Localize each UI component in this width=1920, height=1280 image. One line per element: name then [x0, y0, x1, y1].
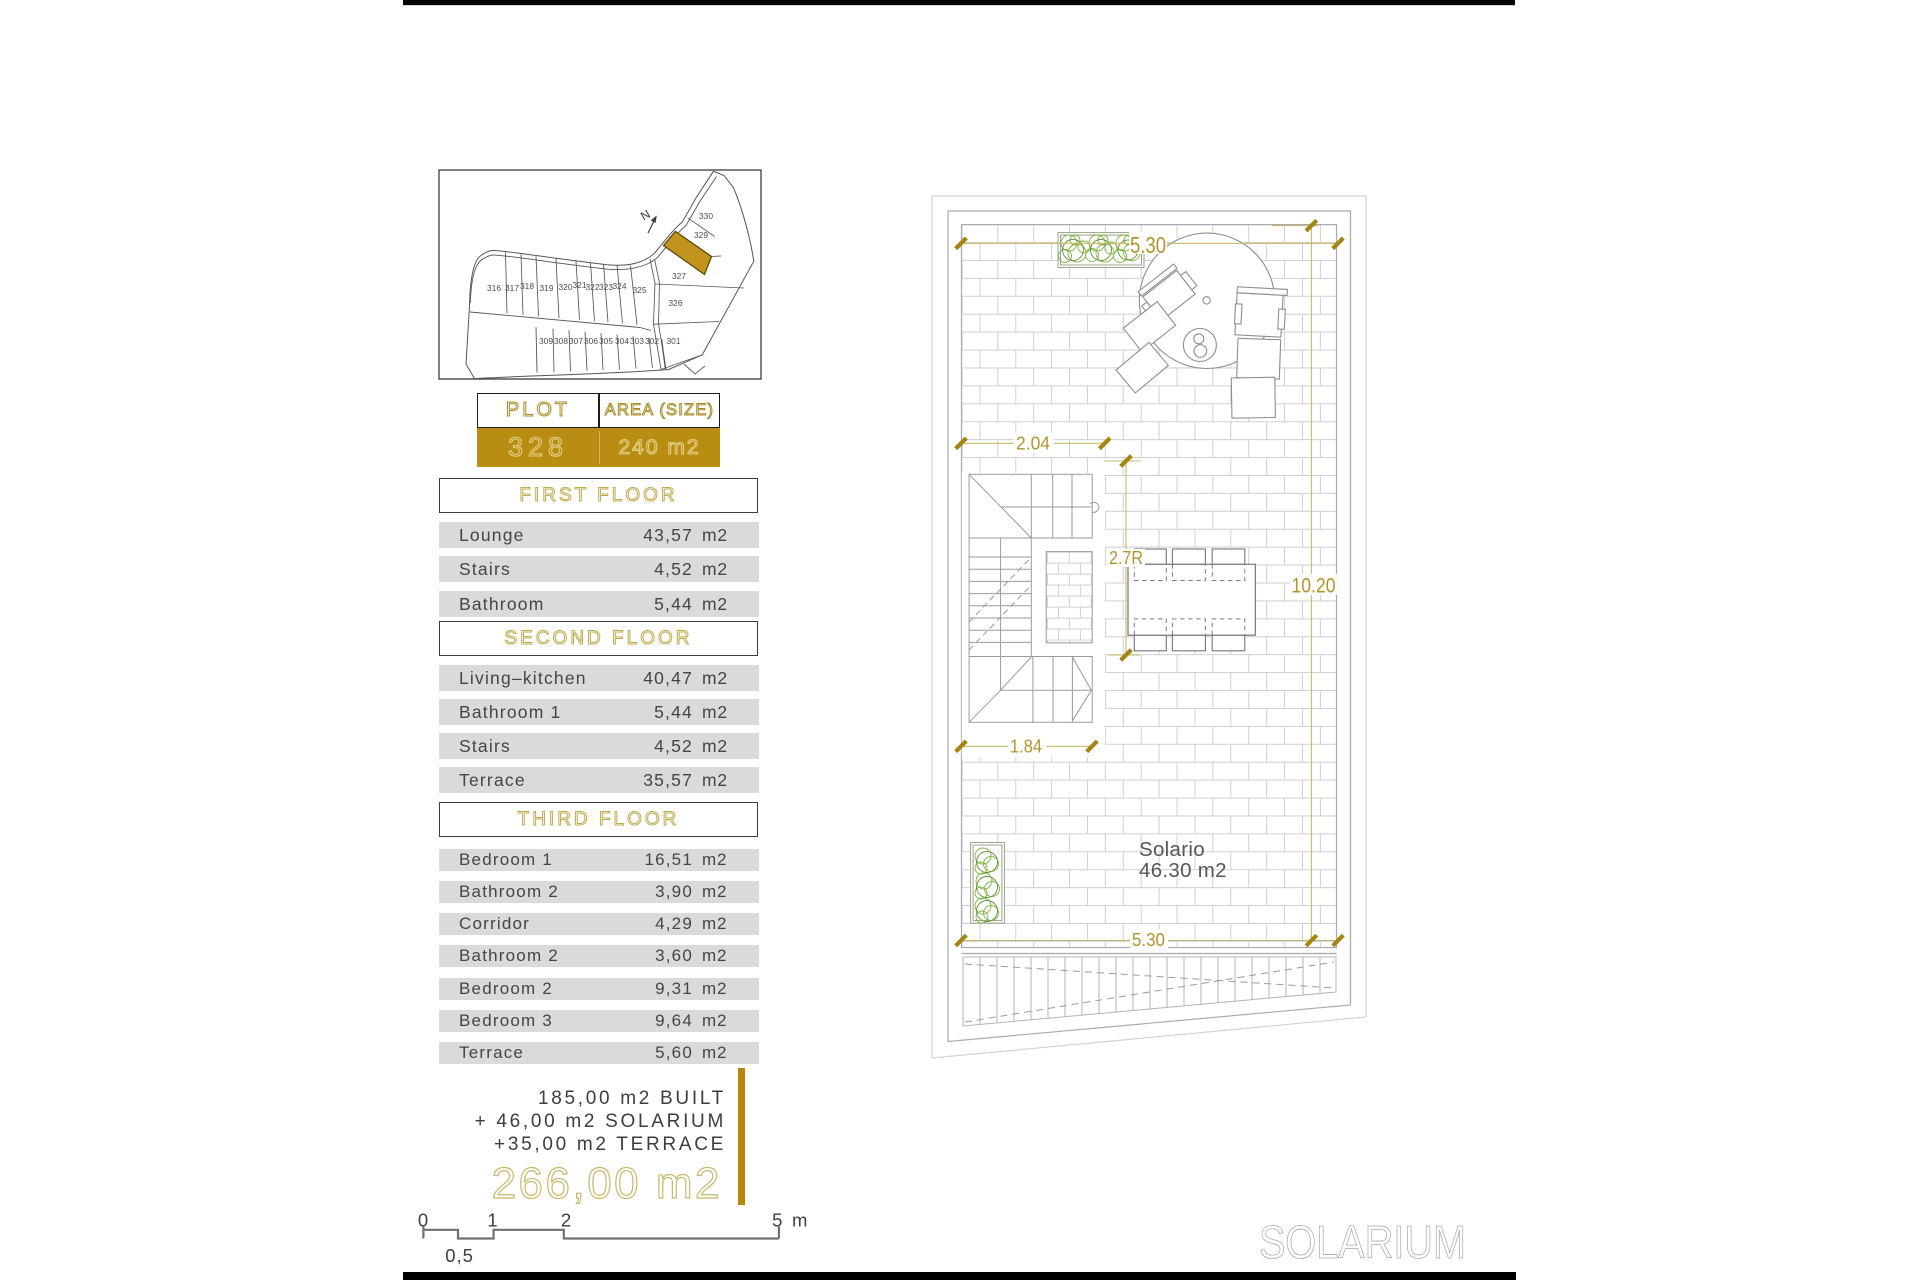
svg-text:46.30 m2: 46.30 m2: [1139, 859, 1227, 882]
svg-text:0: 0: [418, 1210, 428, 1231]
svg-text:317: 317: [505, 283, 519, 293]
svg-text:5.30: 5.30: [1132, 930, 1165, 950]
svg-text:0,5: 0,5: [445, 1245, 474, 1266]
svg-text:322: 322: [586, 282, 600, 292]
svg-text:320: 320: [559, 282, 573, 292]
svg-text:304: 304: [615, 336, 629, 346]
svg-text:SOLARIUM: SOLARIUM: [1259, 1216, 1466, 1268]
svg-text:308: 308: [554, 336, 568, 346]
svg-text:326: 326: [669, 298, 683, 308]
svg-text:1.84: 1.84: [1010, 737, 1042, 757]
svg-text:306: 306: [584, 336, 598, 346]
svg-text:307: 307: [569, 336, 583, 346]
svg-text:5.30: 5.30: [1130, 232, 1166, 258]
svg-text:305: 305: [599, 336, 613, 346]
svg-text:m: m: [792, 1210, 807, 1231]
svg-text:N: N: [638, 207, 653, 223]
svg-text:2.7R: 2.7R: [1109, 548, 1143, 568]
svg-text:302: 302: [645, 336, 659, 346]
svg-text:2: 2: [561, 1210, 571, 1231]
svg-text:324: 324: [613, 281, 627, 291]
svg-text:2.04: 2.04: [1016, 434, 1050, 454]
svg-text:327: 327: [672, 271, 686, 281]
svg-text:1: 1: [487, 1210, 497, 1231]
svg-text:323: 323: [599, 282, 613, 292]
svg-text:329: 329: [694, 230, 708, 240]
svg-text:301: 301: [667, 336, 681, 346]
svg-text:Solario: Solario: [1139, 838, 1205, 861]
svg-text:330: 330: [699, 211, 713, 221]
svg-text:10.20: 10.20: [1292, 575, 1336, 598]
svg-text:325: 325: [633, 285, 647, 295]
svg-text:318: 318: [520, 281, 534, 291]
svg-text:319: 319: [540, 283, 554, 293]
svg-text:5: 5: [772, 1210, 782, 1231]
svg-text:316: 316: [487, 283, 501, 293]
svg-text:309: 309: [539, 336, 553, 346]
svg-text:303: 303: [630, 336, 644, 346]
